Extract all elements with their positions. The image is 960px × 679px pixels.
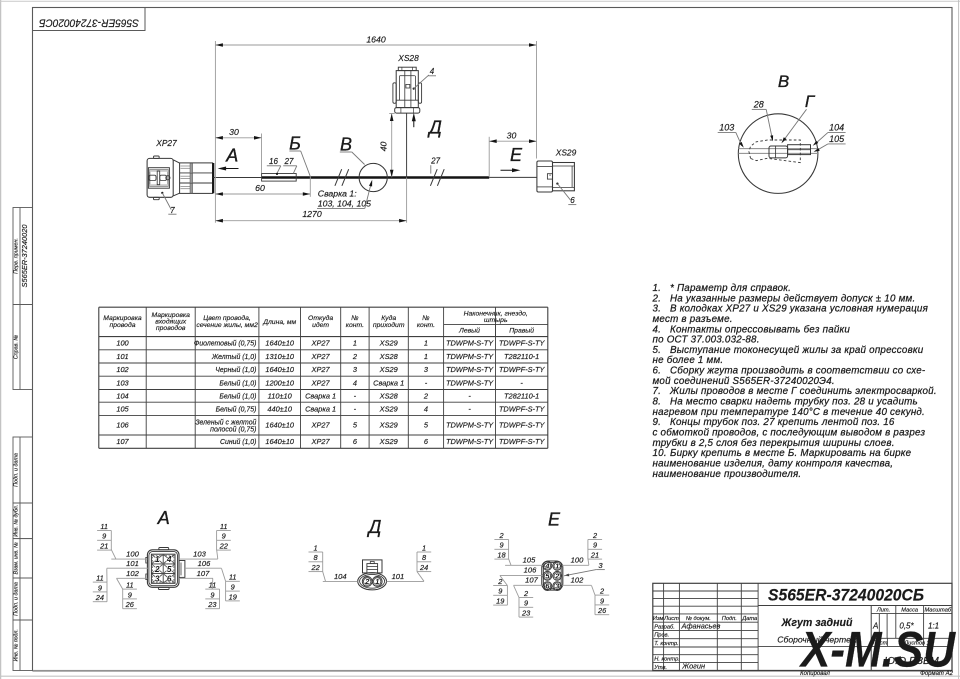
svg-text:TDWPM-S-TY: TDWPM-S-TY	[446, 437, 494, 446]
svg-text:104: 104	[116, 391, 128, 400]
svg-text:Копировал: Копировал	[800, 671, 830, 677]
svg-text:1: 1	[314, 543, 318, 552]
svg-text:104: 104	[334, 572, 347, 581]
svg-text:4: 4	[166, 555, 172, 564]
svg-text:TDWPF-S-TY: TDWPF-S-TY	[499, 404, 546, 413]
svg-text:В: В	[778, 72, 789, 91]
svg-text:Перв. примен.: Перв. примен.	[13, 238, 19, 274]
svg-text:100: 100	[116, 339, 129, 348]
svg-text:102: 102	[126, 569, 139, 578]
svg-text:конт.: конт.	[346, 322, 364, 329]
svg-text:19: 19	[496, 597, 504, 606]
svg-text:5: 5	[167, 565, 172, 574]
svg-text:В: В	[340, 135, 352, 155]
svg-text:1: 1	[555, 561, 559, 570]
svg-text:Взам. инв. №: Взам. инв. №	[13, 542, 19, 574]
svg-text:105: 105	[116, 404, 129, 413]
svg-text:Д: Д	[367, 517, 382, 537]
svg-text:Афанасьев: Афанасьев	[681, 622, 721, 631]
svg-text:107: 107	[197, 569, 210, 578]
svg-text:Белый (0,75): Белый (0,75)	[216, 405, 257, 413]
svg-text:26: 26	[125, 600, 135, 609]
svg-text:Сварка 1: Сварка 1	[373, 378, 404, 387]
svg-text:штырь: штырь	[484, 317, 508, 324]
svg-text:XP27: XP27	[311, 378, 331, 387]
svg-text:Жогин: Жогин	[681, 662, 705, 671]
svg-text:23: 23	[207, 600, 217, 609]
svg-text:110±10: 110±10	[268, 391, 293, 400]
svg-text:1310±10: 1310±10	[265, 352, 295, 361]
svg-text:Подп.: Подп.	[722, 616, 737, 622]
svg-text:19: 19	[229, 592, 237, 601]
svg-text:Белый (1,0): Белый (1,0)	[219, 392, 256, 400]
svg-text:Разраб.: Разраб.	[654, 624, 675, 630]
svg-text:S565ER-37240020СБ: S565ER-37240020СБ	[768, 587, 924, 605]
svg-text:Е: Е	[510, 145, 523, 165]
svg-text:№: №	[351, 315, 358, 322]
svg-text:полосой (0,75): полосой (0,75)	[210, 426, 256, 434]
svg-text:XS29: XS29	[379, 437, 398, 446]
svg-text:Инв. № подл.: Инв. № подл.	[13, 629, 19, 661]
svg-text:Пров.: Пров.	[654, 633, 669, 639]
svg-text:XP27: XP27	[311, 437, 331, 446]
svg-text:24: 24	[419, 563, 428, 572]
svg-text:TDWPM-S-TY: TDWPM-S-TY	[446, 365, 494, 374]
svg-text:28: 28	[753, 99, 764, 109]
svg-text:9: 9	[210, 590, 214, 599]
svg-text:2: 2	[352, 352, 357, 361]
svg-text:105: 105	[523, 556, 536, 565]
svg-text:не более 1 мм.: не более 1 мм.	[653, 355, 724, 366]
svg-text:22: 22	[310, 563, 319, 572]
svg-text:XS29: XS29	[379, 421, 398, 430]
svg-text:4: 4	[424, 404, 428, 413]
svg-text:1640±10: 1640±10	[265, 339, 295, 348]
svg-text:Маркировка: Маркировка	[103, 315, 142, 322]
svg-text:S565ER-37240020: S565ER-37240020	[20, 224, 29, 288]
svg-text:сечение жилы, мм2: сечение жилы, мм2	[196, 322, 258, 329]
svg-text:2: 2	[498, 531, 503, 540]
svg-text:106: 106	[198, 559, 211, 568]
svg-text:1: 1	[353, 339, 357, 348]
svg-text:60: 60	[255, 183, 265, 193]
svg-text:TDWPF-S-TY: TDWPF-S-TY	[499, 437, 546, 446]
svg-text:2: 2	[554, 571, 560, 580]
svg-text:Формат А2: Формат А2	[920, 671, 953, 677]
svg-text:9: 9	[524, 599, 528, 608]
svg-text:А: А	[157, 508, 170, 528]
svg-text:27: 27	[430, 157, 440, 166]
svg-text:9: 9	[128, 590, 132, 599]
svg-text:1200±10: 1200±10	[265, 378, 295, 387]
svg-text:Д: Д	[427, 118, 442, 138]
svg-text:9: 9	[222, 532, 226, 541]
svg-text:S565ER-37240020СБ: S565ER-37240020СБ	[39, 17, 139, 29]
svg-text:440±10: 440±10	[267, 404, 292, 413]
svg-text:XS29: XS29	[379, 365, 398, 374]
svg-text:3.: 3.	[653, 304, 662, 315]
svg-text:21: 21	[99, 542, 108, 551]
svg-text:Сварка 1: Сварка 1	[305, 391, 336, 400]
svg-text:6: 6	[570, 196, 575, 205]
svg-text:107: 107	[525, 576, 538, 585]
svg-text:Инв. № дубл.: Инв. № дубл.	[13, 505, 19, 537]
svg-text:T282110-1: T282110-1	[504, 391, 539, 400]
svg-text:104: 104	[829, 122, 844, 132]
svg-text:100: 100	[571, 556, 584, 565]
svg-text:1640±10: 1640±10	[265, 437, 295, 446]
svg-text:Фиолетовый (0,75): Фиолетовый (0,75)	[194, 340, 257, 348]
svg-text:Длина, мм: Длина, мм	[262, 319, 296, 326]
svg-text:Сварка 1:: Сварка 1:	[318, 189, 357, 199]
svg-text:103: 103	[193, 550, 206, 559]
svg-text:103: 103	[719, 122, 734, 132]
svg-text:9: 9	[98, 583, 102, 592]
svg-text:Белый (1,0): Белый (1,0)	[219, 379, 256, 387]
svg-text:22: 22	[219, 542, 228, 551]
svg-text:Справ. №: Справ. №	[13, 335, 19, 360]
svg-text:Н. контр.: Н. контр.	[654, 657, 680, 663]
svg-text:1: 1	[375, 577, 379, 586]
svg-text:TDWPF-S-TY: TDWPF-S-TY	[499, 339, 546, 348]
svg-text:TDWPM-S-TY: TDWPM-S-TY	[446, 421, 494, 430]
svg-text:Зеленый с желтой: Зеленый с желтой	[195, 419, 256, 427]
svg-text:27: 27	[284, 157, 294, 166]
svg-text:Черный (1,0): Черный (1,0)	[215, 366, 256, 374]
svg-text:В колодках XP27 и XS29 указана: В колодках XP27 и XS29 указана условная …	[670, 304, 929, 315]
svg-text:1: 1	[424, 352, 428, 361]
svg-text:2: 2	[423, 391, 428, 400]
svg-text:Дата: Дата	[741, 616, 757, 622]
svg-text:105: 105	[829, 134, 845, 144]
svg-text:1640: 1640	[366, 34, 385, 44]
svg-text:Б: Б	[289, 133, 301, 153]
svg-text:1640±10: 1640±10	[265, 421, 295, 430]
svg-text:А: А	[225, 145, 238, 165]
svg-text:Куда: Куда	[381, 314, 396, 322]
svg-text:24: 24	[95, 593, 104, 602]
svg-text:TDWPM-S-TY: TDWPM-S-TY	[446, 339, 494, 348]
svg-text:101: 101	[392, 572, 405, 581]
svg-text:9: 9	[593, 541, 597, 550]
svg-text:1270: 1270	[302, 209, 321, 219]
svg-text:XP27: XP27	[311, 421, 331, 430]
svg-text:X-M.SU: X-M.SU	[798, 622, 956, 678]
svg-text:2: 2	[592, 531, 597, 540]
svg-text:Изм: Изм	[653, 616, 664, 622]
svg-text:XS29: XS29	[555, 147, 577, 157]
svg-text:Сварка 1: Сварка 1	[305, 404, 336, 413]
svg-text:Синий (1,0): Синий (1,0)	[220, 438, 256, 446]
svg-text:106: 106	[116, 421, 129, 430]
svg-text:100: 100	[126, 550, 139, 559]
svg-text:проводов: проводов	[156, 324, 186, 332]
svg-text:30: 30	[507, 130, 517, 140]
svg-text:нагревом при температуре 140°С: нагревом при температуре 140°С в течение…	[653, 407, 926, 418]
svg-text:9: 9	[231, 583, 235, 592]
svg-text:конт.: конт.	[417, 322, 435, 329]
svg-text:1: 1	[424, 339, 428, 348]
svg-text:Утв.: Утв.	[653, 665, 667, 671]
svg-text:TDWPF-S-TY: TDWPF-S-TY	[499, 421, 546, 430]
svg-text:7: 7	[170, 206, 175, 215]
svg-text:XS28: XS28	[379, 391, 399, 400]
svg-text:2: 2	[364, 577, 370, 586]
svg-text:1640±10: 1640±10	[265, 365, 295, 374]
svg-text:2: 2	[599, 587, 604, 596]
svg-text:Лит.: Лит.	[876, 608, 890, 614]
svg-text:6: 6	[167, 575, 172, 584]
svg-text:9: 9	[600, 596, 604, 605]
svg-text:XP27: XP27	[311, 352, 331, 361]
svg-text:TDWPM-S-TY: TDWPM-S-TY	[446, 352, 494, 361]
svg-text:наименование изделия, дату кон: наименование изделия, дату контроля каче…	[653, 458, 894, 469]
svg-text:Лист: Лист	[663, 616, 679, 622]
svg-text:11: 11	[100, 522, 108, 531]
svg-text:3: 3	[155, 575, 160, 584]
svg-text:Левый: Левый	[458, 327, 480, 335]
svg-text:Подп. и дата: Подп. и дата	[13, 453, 19, 487]
svg-text:102: 102	[116, 365, 128, 374]
svg-text:11: 11	[229, 573, 237, 582]
svg-text:Подп. и дата: Подп. и дата	[13, 582, 19, 616]
svg-text:21: 21	[590, 551, 599, 560]
svg-text:9: 9	[499, 541, 503, 550]
svg-text:2: 2	[523, 589, 528, 598]
svg-text:26: 26	[597, 606, 607, 615]
svg-text:XP27: XP27	[311, 365, 331, 374]
svg-text:TDWPF-S-TY: TDWPF-S-TY	[499, 365, 546, 374]
svg-text:1: 1	[422, 543, 426, 552]
svg-text:XP27: XP27	[311, 339, 331, 348]
svg-text:101: 101	[116, 352, 128, 361]
svg-text:Желтый (1,0): Желтый (1,0)	[211, 353, 257, 361]
svg-text:XS28: XS28	[379, 352, 399, 361]
svg-text:11: 11	[96, 574, 104, 583]
svg-text:9: 9	[102, 532, 106, 541]
svg-text:Масштаб: Масштаб	[925, 608, 952, 614]
svg-text:наименование производителя.: наименование производителя.	[653, 469, 802, 480]
svg-text:провода: провода	[109, 321, 135, 329]
svg-text:2: 2	[154, 565, 160, 574]
svg-text:TDWPM-S-TY: TDWPM-S-TY	[446, 378, 494, 387]
svg-text:Т. контр.: Т. контр.	[654, 641, 679, 647]
svg-text:Цвет провода,: Цвет провода,	[203, 314, 251, 322]
svg-text:XP27: XP27	[155, 138, 177, 148]
svg-text:11: 11	[126, 581, 134, 590]
svg-text:16: 16	[269, 157, 278, 166]
svg-text:XS28: XS28	[397, 53, 419, 63]
svg-text:18: 18	[497, 551, 506, 560]
svg-text:XS29: XS29	[379, 404, 398, 413]
svg-text:Масса: Масса	[901, 608, 918, 614]
svg-text:4: 4	[353, 378, 357, 387]
svg-text:Правый: Правый	[509, 327, 534, 335]
svg-text:№: №	[422, 315, 429, 322]
svg-text:4: 4	[430, 67, 435, 76]
svg-text:103, 104, 105: 103, 104, 105	[318, 199, 371, 209]
svg-text:101: 101	[126, 559, 139, 568]
svg-text:идет: идет	[312, 321, 329, 329]
svg-text:107: 107	[116, 437, 129, 446]
svg-text:1: 1	[155, 555, 160, 564]
svg-text:T282110-1: T282110-1	[504, 352, 539, 361]
svg-text:9: 9	[498, 587, 502, 596]
svg-text:Откуда: Откуда	[308, 314, 333, 322]
svg-text:XS29: XS29	[379, 339, 398, 348]
svg-text:40: 40	[378, 142, 388, 152]
svg-text:106: 106	[524, 566, 537, 575]
svg-text:Е: Е	[548, 510, 561, 530]
svg-text:30: 30	[229, 127, 239, 137]
svg-text:приходит: приходит	[373, 321, 405, 329]
svg-text:103: 103	[116, 378, 129, 387]
svg-text:23: 23	[521, 609, 531, 618]
svg-text:4: 4	[544, 561, 550, 570]
svg-text:11: 11	[220, 522, 228, 531]
svg-text:102: 102	[571, 576, 584, 585]
